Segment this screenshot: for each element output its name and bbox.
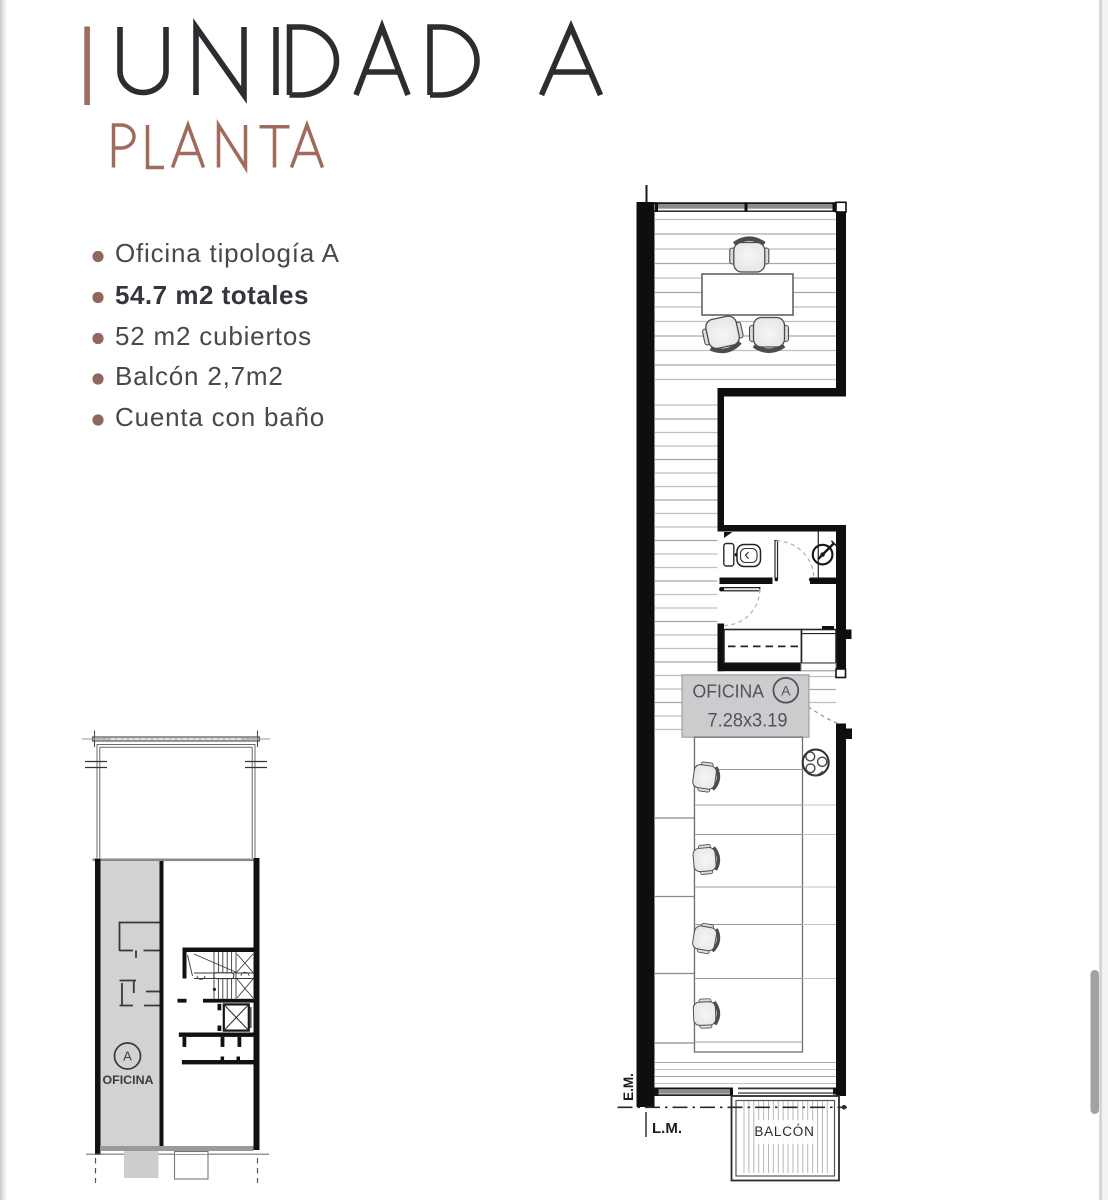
svg-text:Oficina tipología A: Oficina tipología A <box>115 238 340 268</box>
svg-text:A: A <box>781 683 791 699</box>
svg-text:54.7 m2 totales: 54.7 m2 totales <box>115 280 309 310</box>
svg-text:Cuenta con baño: Cuenta con baño <box>115 402 325 432</box>
svg-text:BALCÓN: BALCÓN <box>754 1124 814 1139</box>
svg-text:OFICINA: OFICINA <box>103 1073 154 1087</box>
svg-text:L.M.: L.M. <box>652 1120 682 1137</box>
svg-text:OFICINA: OFICINA <box>693 682 765 702</box>
svg-text:A: A <box>123 1049 132 1064</box>
svg-text:E.M.: E.M. <box>621 1073 636 1101</box>
svg-text:7.28x3.19: 7.28x3.19 <box>708 710 788 732</box>
svg-text:52 m2 cubiertos: 52 m2 cubiertos <box>115 321 312 351</box>
svg-text:Balcón 2,7m2: Balcón 2,7m2 <box>115 361 284 391</box>
